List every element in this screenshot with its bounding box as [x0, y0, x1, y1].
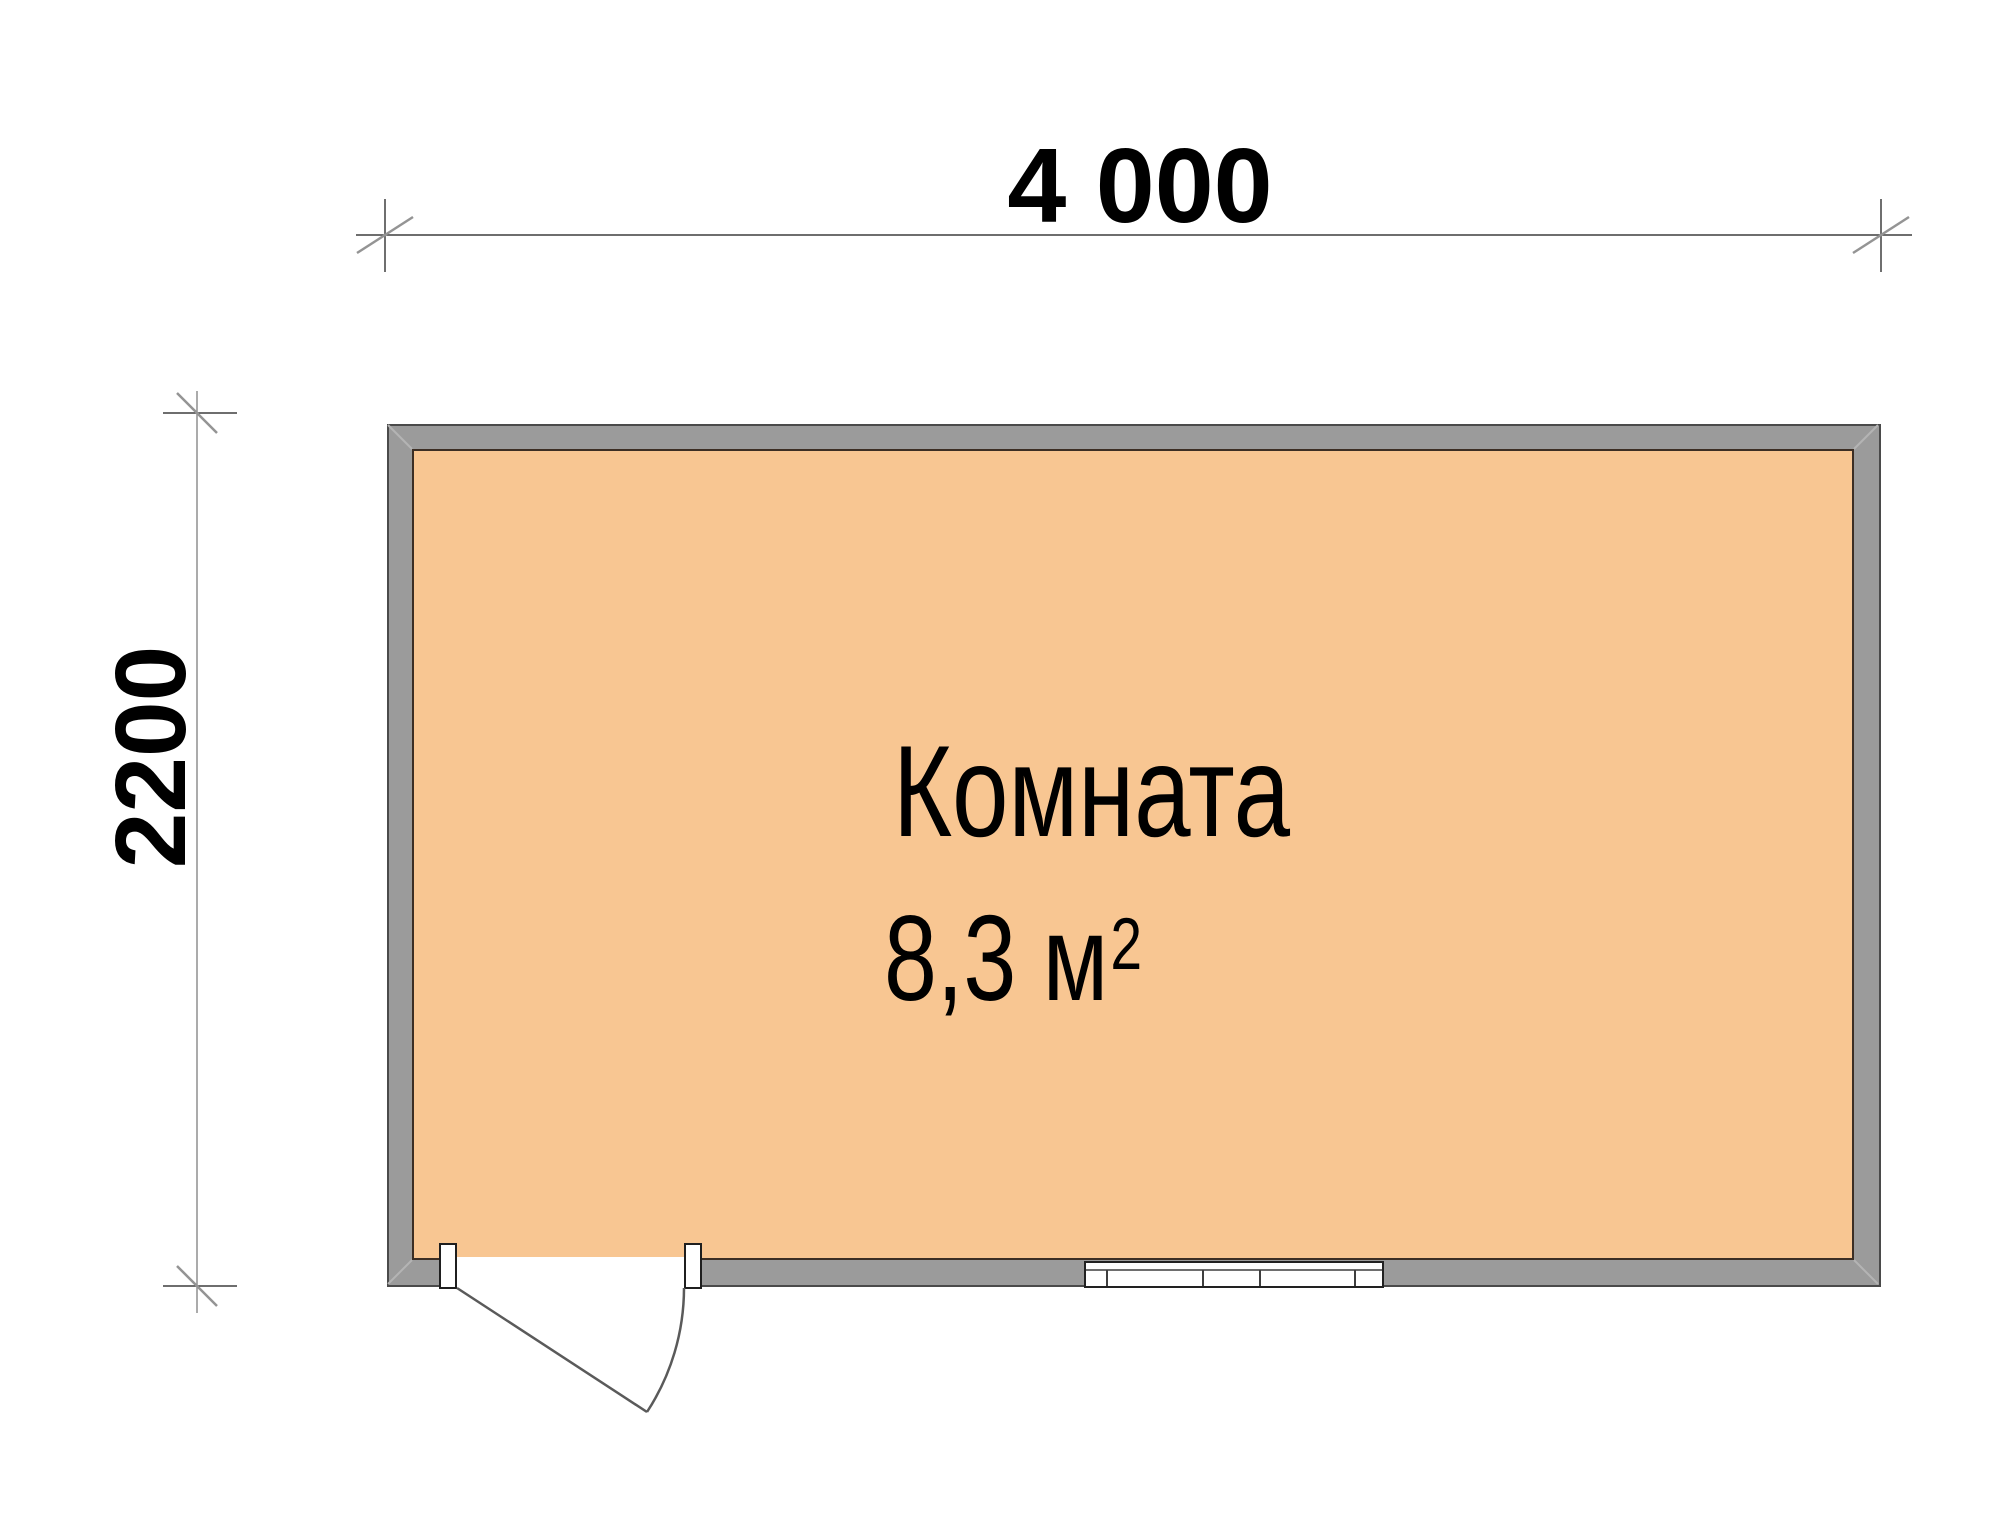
dimension-height-label: 2200 [101, 607, 201, 907]
door-swing-arc [647, 1288, 684, 1412]
wall-miter-bottom-right [1854, 1260, 1878, 1284]
wall-miter-bottom-left [388, 1260, 412, 1284]
door-leaf-line [457, 1288, 647, 1412]
dimension-width-label: 4 000 [990, 133, 1290, 239]
wall-miter-top-left [388, 425, 412, 449]
room-area-superscript: 2 [1110, 903, 1142, 985]
floor-plan: Комната 8,3 м2 4 000 2200 [0, 0, 2000, 1540]
wall-miter-top-right [1854, 425, 1878, 449]
room-area-value: 8,3 м [884, 890, 1108, 1026]
room-label: Комната [893, 726, 1290, 856]
room-area-label: 8,3 м2 [884, 897, 1140, 1019]
